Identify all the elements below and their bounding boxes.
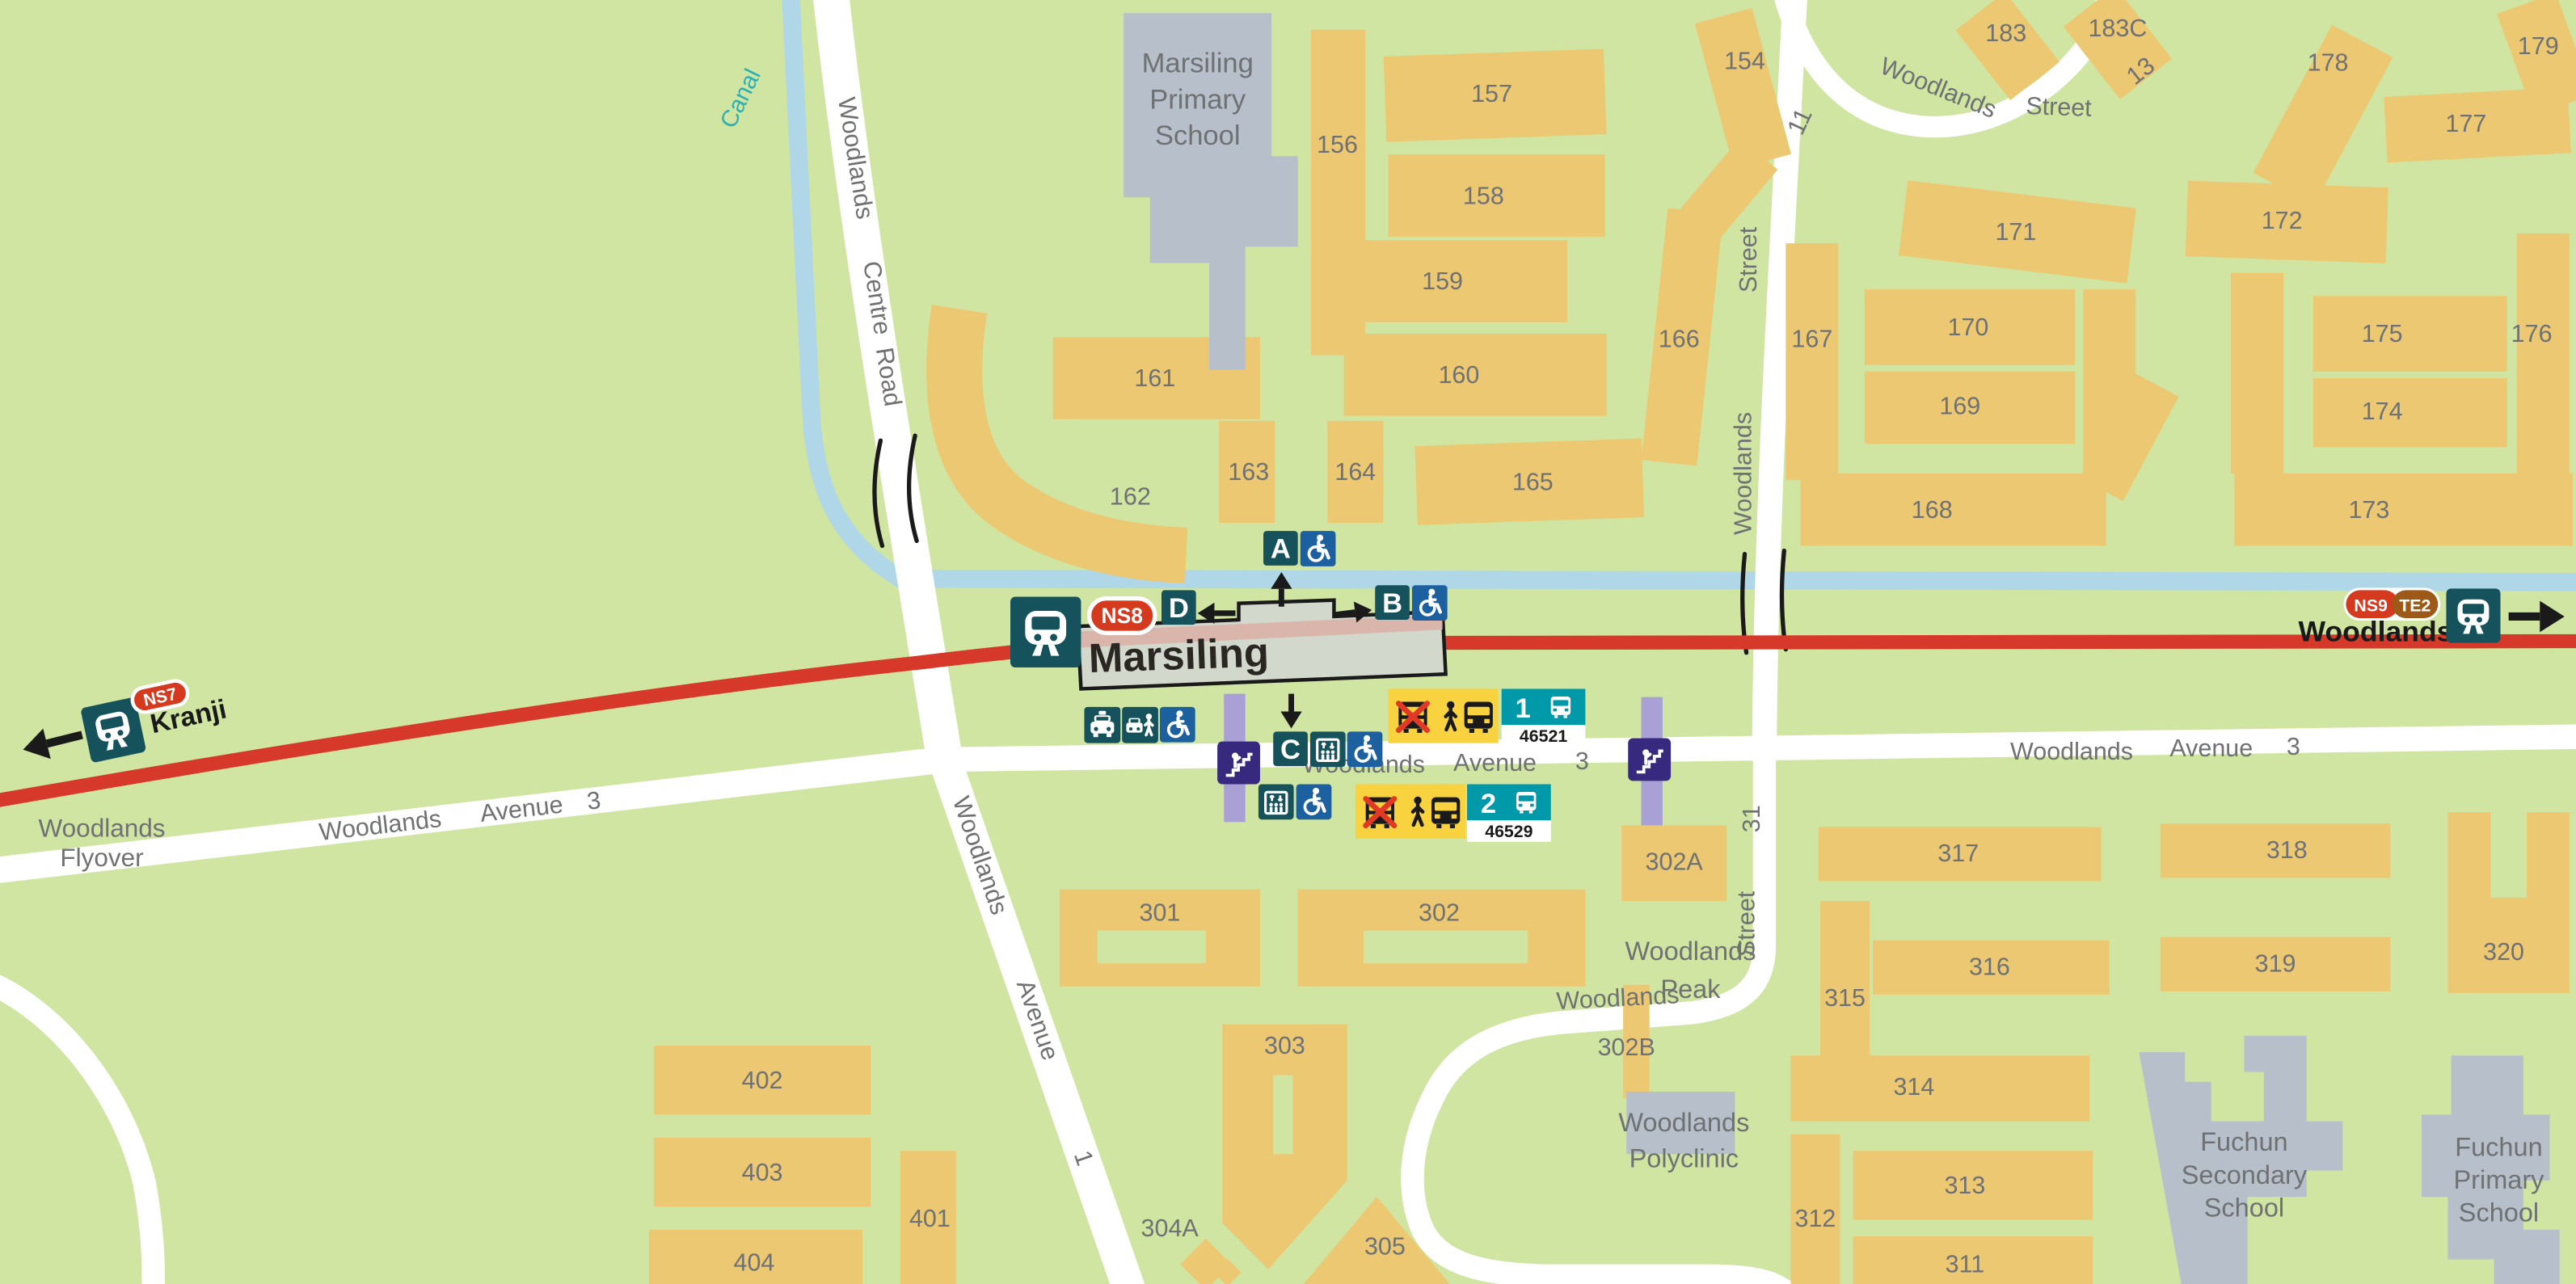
bus-stop-code: 46529 <box>1485 822 1533 841</box>
block-label-169: 169 <box>1939 393 1980 420</box>
exit-label-D: D <box>1169 593 1189 624</box>
map-viewport: Canal15615715815916016116316416516616717… <box>0 0 2576 1284</box>
block-label-164: 164 <box>1334 458 1376 486</box>
block-label-175: 175 <box>2362 320 2403 347</box>
bus-stop-badge <box>1467 784 1551 820</box>
block-courtyard <box>1273 1076 1292 1155</box>
road-label: Woodlands <box>2010 738 2133 765</box>
bus-stop-number: 2 <box>1481 789 1496 819</box>
line-badge-ns8-label: NS8 <box>1102 604 1143 628</box>
block-label-304A: 304A <box>1141 1215 1199 1242</box>
block-315 <box>1820 901 1870 1065</box>
block-label-162: 162 <box>1110 483 1151 511</box>
block-label-172: 172 <box>2262 207 2303 234</box>
place-label: Fuchun <box>2200 1127 2287 1156</box>
bus-stop-badge <box>1502 688 1586 725</box>
terminal-woodlands-label: Woodlands <box>2299 615 2453 647</box>
block-168 <box>1801 474 2106 546</box>
block-label-302A: 302A <box>1646 848 1704 875</box>
block-label-165: 165 <box>1512 468 1554 495</box>
block-label-403: 403 <box>742 1159 783 1186</box>
block-label-161: 161 <box>1134 364 1175 392</box>
block-part <box>2231 273 2283 474</box>
bus-stop-code: 46521 <box>1520 726 1567 746</box>
block-label-402: 402 <box>742 1067 783 1094</box>
block-label-315: 315 <box>1824 984 1866 1012</box>
road-label: Avenue <box>1453 749 1537 777</box>
line-badge-ns9-label: NS9 <box>2354 596 2388 615</box>
exit-label-B: B <box>1382 588 1402 619</box>
road-label: Avenue <box>2169 735 2253 762</box>
block-label-319: 319 <box>2255 949 2296 977</box>
road-label: Street <box>2026 92 2093 122</box>
block-label-401: 401 <box>909 1205 951 1232</box>
block-label-159: 159 <box>1422 267 1463 295</box>
place-label: Primary <box>2453 1165 2544 1194</box>
block-label-173: 173 <box>2348 496 2389 524</box>
block-courtyard <box>1098 931 1206 964</box>
block-175 <box>2313 296 2507 372</box>
block-label-176: 176 <box>2511 320 2553 347</box>
place-label: Primary <box>1149 84 1246 115</box>
block-label-171: 171 <box>1995 218 2036 246</box>
place-label: School <box>2459 1198 2539 1227</box>
block-167 <box>1785 243 1838 480</box>
block-label-166: 166 <box>1659 325 1700 352</box>
block-label-154: 154 <box>1724 47 1765 74</box>
road-label: 3 <box>585 786 602 815</box>
exit-label-A: A <box>1271 534 1291 565</box>
block-label-174: 174 <box>2362 398 2403 425</box>
station-name: Marsiling <box>1088 629 1270 681</box>
block-courtyard <box>1364 931 1528 964</box>
road-label: Woodlands <box>1730 412 1757 535</box>
place-label: Fuchun <box>2455 1132 2542 1161</box>
block-label-312: 312 <box>1795 1205 1836 1232</box>
place-label: Secondary <box>2182 1160 2308 1189</box>
building-courtyard <box>2211 1072 2264 1122</box>
block-label-303: 303 <box>1264 1032 1305 1059</box>
exit-direction-arrow <box>1334 613 1355 615</box>
road-label: 3 <box>2287 733 2300 760</box>
block-label-158: 158 <box>1463 182 1504 209</box>
block-label-183: 183 <box>1985 19 2026 47</box>
block-label-314: 314 <box>1893 1073 1934 1101</box>
bus-stop-number: 1 <box>1516 693 1531 724</box>
place-label: Woodlands <box>1618 1108 1749 1137</box>
block-label-318: 318 <box>2266 836 2308 864</box>
block-label-316: 316 <box>1969 953 2010 980</box>
block-label-160: 160 <box>1438 361 1479 389</box>
place-label: Flyover <box>60 843 143 872</box>
block-176 <box>2517 234 2570 480</box>
block-label-302: 302 <box>1419 899 1460 926</box>
block-label-163: 163 <box>1228 458 1269 486</box>
road-label: 3 <box>1575 747 1589 775</box>
block-173 <box>2234 474 2573 546</box>
place-label: Marsiling <box>1142 48 1254 79</box>
block-label-305: 305 <box>1364 1232 1406 1260</box>
marsiling-station-map: Canal15615715815916016116316416516616717… <box>0 0 2576 1284</box>
block-label-156: 156 <box>1317 131 1358 158</box>
block-174 <box>2313 378 2507 447</box>
block-label-301: 301 <box>1140 899 1181 926</box>
place-label: School <box>2204 1193 2284 1223</box>
block-label-170: 170 <box>1948 314 1989 341</box>
line-badge-te2-label: TE2 <box>2399 596 2431 615</box>
block-label-183C: 183C <box>2088 15 2147 42</box>
block-label-404: 404 <box>733 1249 774 1277</box>
road-label: 31 <box>1738 805 1765 832</box>
block-label-320: 320 <box>2483 938 2524 966</box>
block-label-302B: 302B <box>1598 1034 1655 1061</box>
block-label-177: 177 <box>2445 110 2486 137</box>
block-label-313: 313 <box>1944 1172 1985 1199</box>
block-label-167: 167 <box>1791 325 1832 352</box>
block-label-168: 168 <box>1912 496 1953 524</box>
place-label: Polyclinic <box>1629 1144 1739 1173</box>
road-label: Street <box>1733 890 1760 957</box>
block-label-317: 317 <box>1937 840 1979 867</box>
exit-label-C: C <box>1280 735 1301 765</box>
block-label-157: 157 <box>1471 80 1512 107</box>
block-label-178: 178 <box>2308 48 2349 76</box>
road-label: Street <box>1735 226 1762 293</box>
place-label: Woodlands <box>39 814 166 843</box>
block-label-179: 179 <box>2518 32 2559 60</box>
place-label: School <box>1155 120 1241 151</box>
block-label-311: 311 <box>1946 1251 1985 1278</box>
escalator-icon <box>1628 739 1671 781</box>
escalator-icon <box>1217 742 1260 785</box>
block-314 <box>1790 1055 2089 1121</box>
